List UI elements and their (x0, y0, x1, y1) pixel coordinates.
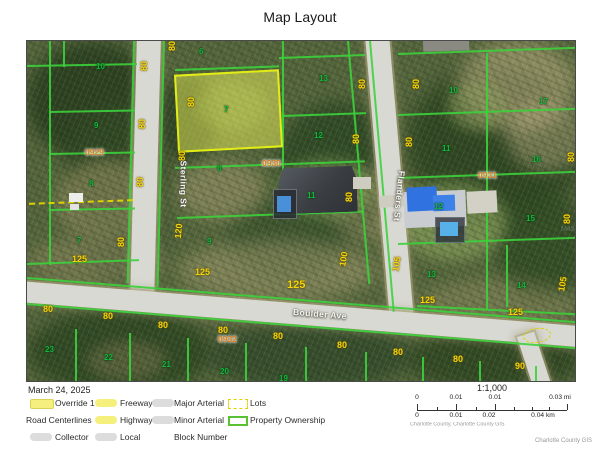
dimension-label: 80 (158, 320, 168, 330)
dimension-label: 120 (173, 223, 184, 239)
dimension-label: 80 (404, 137, 414, 147)
scale-ratio: 1:1,000 (408, 383, 576, 393)
shed (69, 193, 83, 202)
dimension-label: 125 (420, 295, 435, 305)
driveway (466, 190, 497, 214)
map-canvas[interactable]: 1098767813121191017111612151314232221201… (26, 40, 576, 382)
block-number-label: 0930 (262, 158, 281, 168)
legend-label: Minor Arterial (174, 415, 224, 425)
legend-label: Block Number (174, 432, 227, 442)
lot-number-label: 15 (526, 214, 535, 223)
scale-mi-label: 0 (415, 394, 419, 401)
lot-number-label: 21 (162, 360, 171, 369)
scale-km-label: 0 (415, 412, 419, 419)
corner-attribution: Charlotte County GIS (500, 438, 592, 444)
parcel-line (486, 53, 488, 309)
dimension-label: 80 (139, 61, 149, 71)
lot-number-label: 17 (539, 97, 548, 106)
legend-label: Override 1 (55, 398, 95, 408)
legend: March 24, 2025 Override 1Road Centerline… (24, 383, 359, 458)
lot-number-label: 12 (314, 131, 323, 140)
dimension-label: 80 (43, 304, 53, 314)
parcel-line (365, 352, 367, 381)
dimension-label: 80 (273, 331, 283, 341)
lot-number-label: 7 (224, 105, 228, 114)
scale-tick (567, 404, 568, 410)
dimension-label: 125 (195, 267, 210, 277)
lot-number-label: 8 (89, 179, 93, 188)
lot-number-label: 19 (279, 374, 288, 382)
lot-number-label: 14 (517, 281, 526, 290)
scale-bar: 1:1,000 00.010.010.03 mi 00.010.020.04 k… (408, 384, 594, 436)
pool-enclosure (435, 217, 465, 243)
legend-label: Collector (55, 432, 89, 442)
parcel-line (129, 333, 131, 381)
page-title: Map Layout (0, 9, 600, 25)
lot-number-label: 10 (96, 62, 105, 71)
street-name-label: Sterling St (178, 161, 188, 208)
dimension-label: 80 (177, 151, 187, 161)
lot-number-label: 11 (442, 144, 450, 153)
parcel-line (535, 366, 537, 381)
lot-number-label: 12 (434, 202, 443, 211)
dimension-label: 125 (508, 307, 523, 317)
map-date: March 24, 2025 (28, 385, 91, 395)
scale-tick (456, 404, 457, 410)
scale-tick (437, 407, 438, 410)
dimension-label: 80 (411, 79, 421, 89)
scale-tick (514, 407, 515, 410)
parcel-line (282, 41, 284, 173)
scale-mi-label: 0.03 mi (549, 394, 571, 401)
lot-number-label: 16 (532, 155, 541, 164)
block-number-label: 0932 (218, 334, 237, 344)
lot-number-label: 9 (94, 121, 98, 130)
block-number-label: 0931 (478, 170, 497, 180)
dimension-label: 80 (103, 311, 113, 321)
dimension-label: 80 (135, 177, 145, 187)
dimension-label: 80 (393, 347, 403, 357)
legend-swatch-line-yellow (95, 416, 117, 424)
lot-number-label: 6 (199, 47, 203, 56)
legend-label: Freeway (120, 398, 153, 408)
legend-label: Major Arterial (174, 398, 224, 408)
legend-label: Highway (120, 415, 153, 425)
parcel-line (63, 41, 65, 67)
dimension-label: 80 (167, 41, 177, 51)
dimension-label: 80 (116, 237, 126, 247)
parcel-line (422, 357, 424, 381)
lot-number-label: 22 (104, 353, 113, 362)
map-attribution: Charlotte County, Charlotte County GIS (410, 422, 504, 427)
parcel-line (305, 347, 307, 381)
dimension-label: 80 (566, 152, 576, 162)
parcel-line (479, 361, 481, 381)
legend-swatch-line-yellow (95, 399, 117, 407)
legend-label: Lots (250, 398, 266, 408)
scale-km-label: 0.04 km (531, 412, 555, 419)
lot-number-label: 20 (220, 367, 229, 376)
house-roof-gray-top (423, 40, 470, 52)
pool (277, 196, 291, 212)
lot-number-label: 9 (207, 237, 211, 246)
scale-km-label: 0.01 (450, 412, 463, 419)
shed (70, 204, 79, 210)
scale-tick (417, 404, 418, 410)
dimension-label: 125 (287, 279, 305, 291)
scale-tick (476, 407, 477, 410)
dimension-label: 80 (357, 79, 367, 89)
lot-number-label: 7 (77, 236, 81, 245)
legend-swatch-outline-green (228, 416, 248, 426)
driveway (353, 177, 371, 189)
pool-enclosure (273, 189, 297, 219)
scale-mi-label: 0.01 (450, 394, 463, 401)
block-number-label: 0929 (85, 147, 104, 157)
scale-tick (495, 404, 496, 410)
parcel-line (245, 343, 247, 381)
legend-swatch-line-gray (95, 433, 117, 441)
parcel-line (75, 329, 77, 381)
lot-number-label: 13 (319, 74, 328, 83)
lot-number-label: 23 (45, 345, 54, 354)
parcel-line (506, 245, 508, 307)
dimension-label: 80 (337, 340, 347, 350)
pool (440, 222, 458, 236)
lot-number-label: 11 (307, 191, 315, 200)
scale-bar-line (417, 403, 567, 411)
dimension-label: 80 (137, 119, 147, 129)
dimension-label: 125 (72, 254, 87, 264)
dimension-label: 80 (562, 214, 572, 224)
legend-label: Local (120, 432, 140, 442)
dimension-label: 90 (515, 361, 525, 371)
scale-km-label: 0.02 (483, 412, 496, 419)
legend-swatch-fill-yellow (30, 399, 54, 409)
scale-tick (532, 407, 533, 410)
legend-swatch-line-gray (152, 416, 174, 424)
legend-swatch-line-gray (30, 433, 52, 441)
legend-label: Property Ownership (250, 415, 325, 425)
lot-number-label: 8 (217, 164, 221, 173)
legend-swatch-line-gray (152, 399, 174, 407)
dimension-label: 80 (351, 134, 361, 144)
scale-tick (549, 407, 550, 410)
legend-label: Road Centerlines (26, 415, 92, 425)
parcel-line (187, 338, 189, 381)
legend-swatch-dash-yellow (228, 399, 248, 409)
dimension-label: 80 (344, 192, 354, 202)
map-layout-page: Map Layout 109876781312119101711161215 (0, 0, 600, 463)
watermark: M45 (561, 226, 575, 233)
lot-number-label: 10 (449, 86, 458, 95)
override-parcel (174, 69, 283, 152)
scale-mi-label: 0.01 (489, 394, 502, 401)
dimension-label: 80 (453, 354, 463, 364)
dimension-label: 80 (186, 97, 196, 107)
lot-number-label: 13 (427, 270, 436, 279)
